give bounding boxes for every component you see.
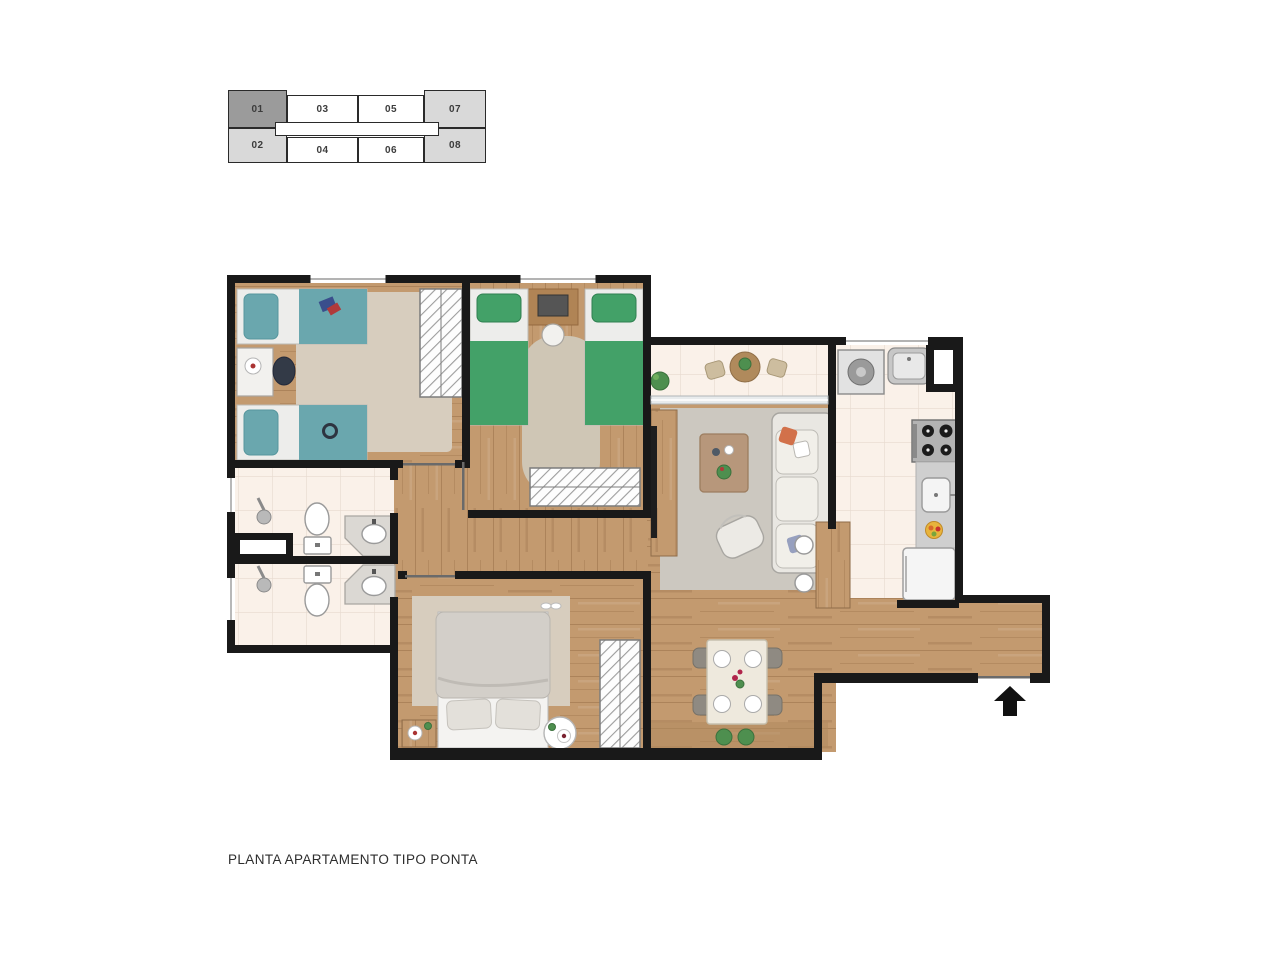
bedroom-1-office-chair (273, 357, 295, 385)
plan-caption: PLANTA APARTAMENTO TIPO PONTA (228, 852, 478, 867)
entry-door (978, 676, 1030, 679)
place-setting (745, 651, 762, 668)
toilet (304, 566, 331, 616)
nightstand-left (402, 720, 436, 747)
bar-stool-top (795, 536, 813, 554)
stove (912, 420, 956, 462)
refrigerator (903, 548, 955, 600)
laundry-sink (888, 348, 930, 384)
double-bed (436, 612, 550, 748)
slippers (541, 603, 551, 609)
bathroom-1-window (227, 478, 235, 512)
fruit-bowl (926, 522, 943, 539)
floor-plant (716, 729, 732, 745)
pillow-white (793, 440, 811, 458)
stove-knobs (913, 424, 917, 458)
living-room (651, 408, 850, 608)
tv-screen (651, 426, 657, 538)
bedroom-1-door (403, 463, 455, 466)
place-setting (714, 651, 731, 668)
floor-plant (738, 729, 754, 745)
bar-counter (816, 522, 850, 608)
balcony-table-plant (739, 358, 751, 370)
flower-centerpiece (732, 675, 738, 681)
washing-machine (838, 350, 884, 394)
single-bed-teal-top (237, 289, 367, 344)
balcony-plant-pot (651, 372, 669, 390)
bedroom-2-door (462, 462, 465, 510)
single-bed-teal-bottom (237, 405, 367, 460)
coffee-table (700, 434, 748, 492)
bedroom-1-window (308, 275, 388, 283)
bedroom-1 (237, 289, 462, 460)
bedroom-2-window (518, 275, 598, 283)
pillow (495, 699, 540, 730)
pillow (446, 699, 491, 730)
place-setting (745, 696, 762, 713)
floor-plan-drawing (0, 0, 1280, 972)
single-bed-green-right (585, 289, 643, 425)
nightstand-right (544, 717, 576, 749)
place-setting (714, 696, 731, 713)
bathroom-2-window (227, 578, 235, 620)
bedroom-2-chair (542, 324, 564, 346)
single-bed-green-left (470, 289, 528, 425)
entry-corridor-floor (818, 598, 1046, 677)
entrance-arrow-icon (994, 686, 1026, 716)
table-plant (717, 465, 731, 479)
computer-monitor (538, 295, 568, 316)
toilet (304, 503, 331, 554)
dining-table (707, 640, 767, 724)
floor-plan-page: 01 02 03 04 05 06 07 08 (0, 0, 1280, 972)
master-bedroom-door (405, 575, 455, 578)
balcony-sliding-door (651, 396, 828, 404)
laundry-window (846, 337, 928, 345)
bar-stool-bottom (795, 574, 813, 592)
